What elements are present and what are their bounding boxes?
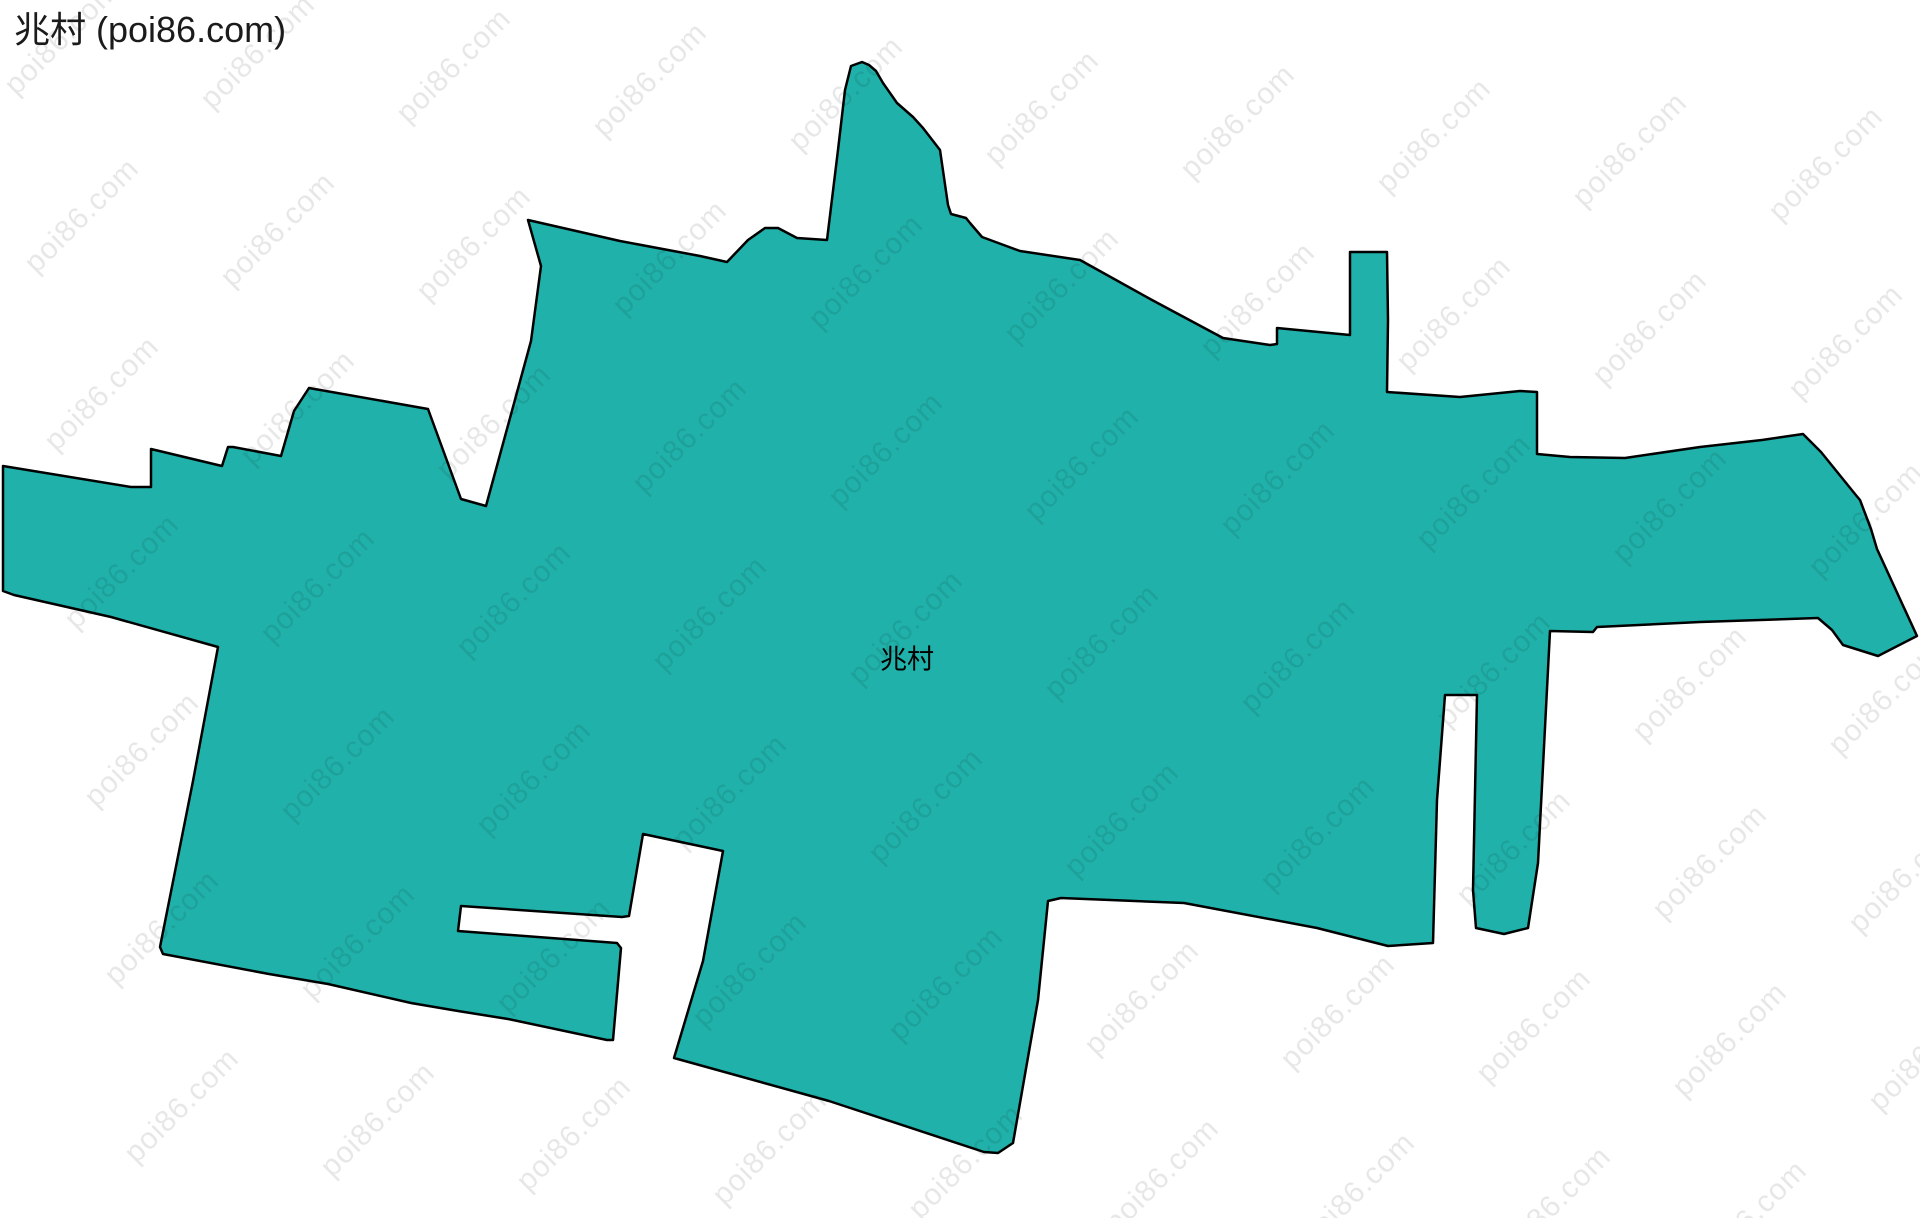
map-canvas: poi86.compoi86.compoi86.compoi86.compoi8…: [0, 0, 1920, 1218]
village-boundary-map: [0, 0, 1920, 1218]
village-boundary-polygon[interactable]: [3, 62, 1917, 1153]
page-title: 兆村 (poi86.com): [14, 8, 286, 51]
region-label: 兆村: [880, 638, 934, 677]
